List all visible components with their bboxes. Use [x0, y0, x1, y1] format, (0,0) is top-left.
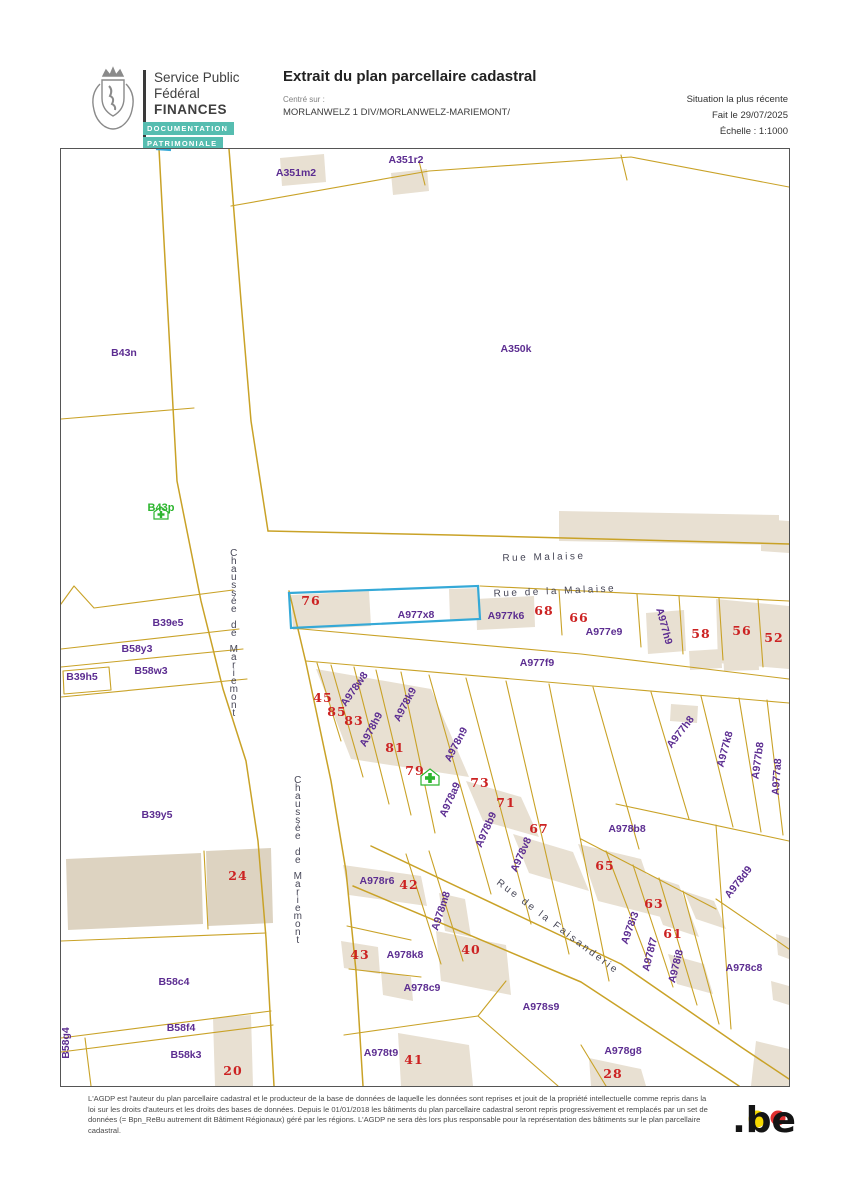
- agency-line2: Fédéral: [154, 86, 200, 101]
- parcel-label-b58k3: B58k3: [171, 1049, 202, 1061]
- house-number-71: 71: [496, 795, 515, 810]
- agency-name: Service Public Fédéral FINANCES: [154, 70, 240, 118]
- parcel-label-a978f7: A978f7: [640, 936, 660, 972]
- green-parcel-label-b43p: B43p: [148, 502, 175, 514]
- parcel-label-a977f9: A977f9: [520, 657, 555, 669]
- house-number-81: 81: [385, 740, 404, 755]
- parcel-label-a350k: A350k: [501, 343, 532, 355]
- house-number-68: 68: [534, 603, 553, 618]
- be-logo-text: .be: [733, 1100, 795, 1140]
- parcel-label-b58f4: B58f4: [167, 1022, 196, 1034]
- house-number-45: 45: [313, 690, 332, 705]
- house-number-67: 67: [529, 821, 548, 836]
- house-number-73: 73: [470, 775, 489, 790]
- house-number-65: 65: [595, 858, 614, 873]
- scale-text: Échelle : 1:1000: [687, 124, 788, 140]
- map-canvas[interactable]: A351m2A351r2A350kB43nB39e5B58y3B39h5B58w…: [61, 149, 789, 1086]
- header: Service Public Fédéral FINANCES DOCUMENT…: [0, 0, 849, 148]
- highlight-layer: [156, 149, 480, 628]
- parcel-label-a978b8: A978b8: [608, 823, 646, 835]
- parcel-label-a978t9: A978t9: [364, 1047, 399, 1059]
- parcel-label-b58c4: B58c4: [159, 976, 190, 988]
- centered-on-label: Centré sur :: [283, 95, 325, 104]
- parcel-label-a351m2: A351m2: [276, 167, 316, 179]
- cadastral-extract-page: Service Public Fédéral FINANCES DOCUMENT…: [0, 0, 849, 1200]
- badge-documentation: DOCUMENTATION: [143, 122, 234, 135]
- agency-line3: FINANCES: [154, 102, 227, 117]
- parcel-label-b39y5: B39y5: [142, 809, 173, 821]
- parcel-label-a977k8: A977k8: [715, 730, 736, 769]
- parcel-label-a978s9: A978s9: [523, 1001, 560, 1013]
- house-number-58: 58: [691, 626, 710, 641]
- parcel-label-a978a9: A978a9: [437, 780, 463, 819]
- house-number-61: 61: [663, 926, 682, 941]
- house-number-56: 56: [732, 623, 751, 638]
- parcel-label-b39e5: B39e5: [153, 617, 184, 629]
- house-number-43: 43: [350, 947, 369, 962]
- parcel-label-b58g4: B58g4: [61, 1027, 72, 1059]
- parcel-label-a978i3: A978i3: [619, 910, 642, 946]
- parcel-label-a978g8: A978g8: [604, 1045, 642, 1057]
- parcel-label-b58y3: B58y3: [122, 643, 153, 655]
- house-number-24: 24: [228, 868, 247, 883]
- parcel-label-a977e9: A977e9: [586, 626, 623, 638]
- street-name-chaussée-de-mariemont: Chaussée de Mariemont: [294, 775, 305, 946]
- federal-coat-of-arms-logo: [88, 64, 138, 136]
- parcel-label-a977b8: A977b8: [749, 741, 766, 780]
- street-name-rue-de-la-malaise: Rue de la Malaise: [493, 583, 616, 599]
- parcel-label-a978b9: A978b9: [473, 810, 499, 849]
- parcel-label-a978r6: A978r6: [359, 875, 394, 887]
- parcel-label-a977a8: A977a8: [770, 758, 785, 796]
- house-number-52: 52: [764, 630, 783, 645]
- house-number-20: 20: [223, 1063, 242, 1078]
- parcel-label-a351r2: A351r2: [388, 154, 423, 166]
- cadastral-map[interactable]: A351m2A351r2A350kB43nB39e5B58y3B39h5B58w…: [60, 148, 790, 1087]
- house-number-28: 28: [603, 1066, 622, 1081]
- house-number-63: 63: [644, 896, 663, 911]
- house-number-83: 83: [344, 713, 363, 728]
- parcel-label-a978c9: A978c9: [404, 982, 441, 994]
- parcel-label-a978k8: A978k8: [387, 949, 424, 961]
- house-number-76: 76: [301, 593, 320, 608]
- parcel-label-b39h5: B39h5: [66, 671, 98, 683]
- parcel-label-a978d9: A978d9: [722, 864, 755, 901]
- footer-disclaimer: L'AGDP est l'auteur du plan parcellaire …: [88, 1094, 708, 1137]
- agency-line1: Service Public: [154, 70, 240, 85]
- be-logo: .be: [733, 1092, 795, 1140]
- page-title: Extrait du plan parcellaire cadastral: [283, 68, 536, 85]
- house-number-66: 66: [569, 610, 588, 625]
- date-text: Fait le 29/07/2025: [687, 108, 788, 124]
- header-meta: Situation la plus récente Fait le 29/07/…: [687, 92, 788, 140]
- street-name-rue-malaise: Rue Malaise: [502, 551, 585, 564]
- house-number-41: 41: [404, 1052, 423, 1067]
- parcel-label-b43n: B43n: [111, 347, 137, 359]
- parcel-label-a978c8: A978c8: [726, 962, 763, 974]
- street-name-chaussée-de-mariemont: Chaussée de Mariemont: [230, 548, 241, 719]
- house-number-40: 40: [461, 942, 480, 957]
- parcel-label-a977x8: A977x8: [398, 609, 435, 621]
- centered-on-value: MORLANWELZ 1 DIV/MORLANWELZ-MARIEMONT/: [283, 107, 510, 118]
- parcel-label-b58w3: B58w3: [134, 665, 167, 677]
- house-number-42: 42: [399, 877, 418, 892]
- house-number-79: 79: [405, 763, 424, 778]
- situation-text: Situation la plus récente: [687, 92, 788, 108]
- parcel-label-a977k6: A977k6: [488, 610, 525, 622]
